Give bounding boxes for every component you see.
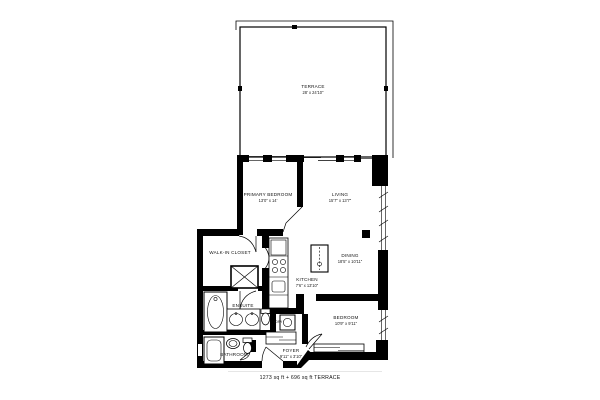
terrace-label: TERRACE	[301, 84, 324, 89]
bedroom-closet	[314, 344, 364, 352]
double-vanity-fixture	[227, 309, 260, 330]
living-dims: 15'7" x 13'7"	[329, 198, 352, 203]
bedroom-label: BEDROOM	[333, 315, 358, 320]
structural-column	[372, 155, 388, 186]
kitchen-island	[311, 245, 328, 272]
dining-label: DINING	[341, 253, 359, 258]
foyer-dims: 9'11" x 3'10"	[280, 354, 303, 359]
area-summary: 1273 sq ft + 696 sq ft TERRACE	[260, 375, 341, 381]
ensuite-bathtub-fixture	[204, 292, 227, 332]
bathroom-label: BATHROOM	[220, 352, 248, 357]
interior-column	[362, 230, 370, 238]
foyer-label: FOYER	[283, 348, 300, 353]
washer-fixture	[280, 315, 295, 330]
ensuite-toilet-fixture	[261, 309, 270, 325]
terrace-dims: 28' x 24'10"	[303, 90, 325, 95]
floor-plan-drawing: TERRACE 28' x 24'10" PRIMARY BEDROOM 13'…	[0, 0, 600, 400]
shower-fixture	[231, 266, 258, 288]
laundry-label: LDRY	[274, 320, 283, 324]
primary-bedroom-label: PRIMARY BEDROOM	[244, 192, 293, 197]
wall-notch	[198, 344, 202, 356]
floor-plan-page: TERRACE 28' x 24'10" PRIMARY BEDROOM 13'…	[0, 0, 600, 400]
coat-closet	[266, 332, 296, 344]
living-label: LIVING	[332, 192, 348, 197]
bathroom-sink-fixture	[227, 339, 240, 349]
ensuite-label: ENSUITE	[232, 303, 253, 308]
kitchen-counter	[269, 238, 288, 308]
kitchen-label: KITCHEN	[296, 277, 318, 282]
bedroom-dims: 10'9" x 9'11"	[335, 321, 358, 326]
dining-dims: 18'5" x 10'11"	[338, 259, 363, 264]
kitchen-dims: 7'6" x 13'10"	[296, 283, 319, 288]
primary-bedroom-dims: 13'0" x 14'	[259, 198, 278, 203]
walk-in-closet-label: WALK-IN CLOSET	[209, 250, 250, 255]
bathroom-tub-fixture	[204, 337, 224, 364]
